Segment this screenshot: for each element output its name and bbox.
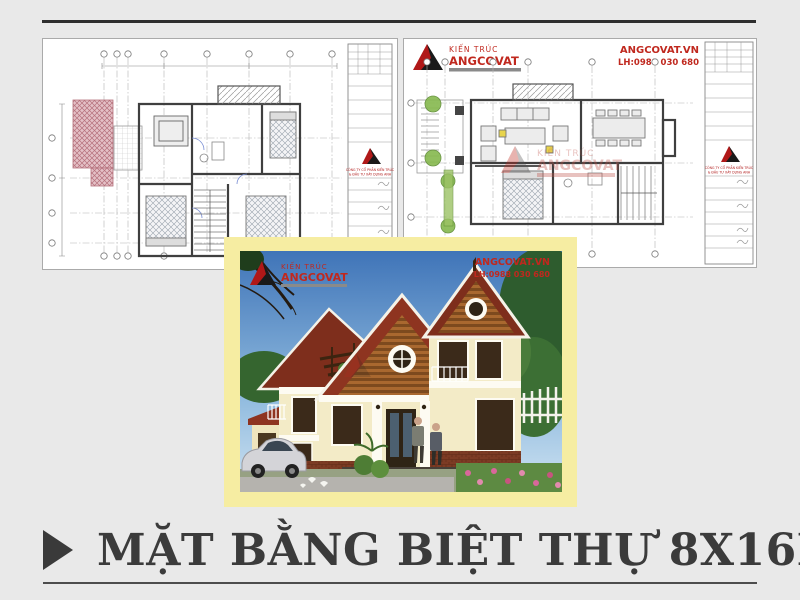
- title-block: CÔNG TY CỔ PHẦN KIẾN TRÚC & ĐẦU TƯ XÂY D…: [346, 44, 395, 264]
- floor-plan-right-drawing: KIẾN TRÚC ANGCOVAT ANGCOVAT.VN LH:0988 0…: [403, 38, 757, 268]
- family-table-icon: [154, 116, 188, 146]
- play-triangle-icon: [43, 530, 73, 570]
- floor-plan-left: CÔNG TY CỔ PHẦN KIẾN TRÚC & ĐẦU TƯ XÂY D…: [42, 38, 398, 270]
- villa-render-scene: KIẾN TRÚC ANGCOVAT ANGCOVAT.VN LH:0988 0…: [224, 237, 577, 507]
- tiled-balcony: [114, 126, 142, 170]
- logo-text-top: KIẾN TRÚC: [449, 44, 498, 54]
- company-name-line2: & ĐẦU TƯ XÂY DỰNG ANH: [708, 170, 751, 175]
- driveway: [240, 477, 454, 492]
- logo-text-top: KIẾN TRÚC: [281, 261, 328, 271]
- flower-garden: [456, 463, 562, 492]
- logo-text-name: ANGCOVAT: [449, 54, 519, 68]
- company-name-line2: & ĐẦU TƯ XÂY DỰNG ANH: [349, 172, 392, 177]
- watermark-line2: ANGCOVAT: [537, 158, 622, 174]
- balcony-railing: [432, 367, 468, 381]
- floor-plan-left-drawing: CÔNG TY CỔ PHẦN KIẾN TRÚC & ĐẦU TƯ XÂY D…: [42, 38, 398, 270]
- logo-text-name: ANGCOVAT: [281, 271, 348, 284]
- brand-contact: LH:0988 030 680: [618, 58, 699, 68]
- villa-render-photo: KIẾN TRÚC ANGCOVAT ANGCOVAT.VN LH:0988 0…: [224, 237, 577, 507]
- footer-underline: [43, 582, 757, 584]
- top-rule: [42, 20, 756, 23]
- floor-plan-right: KIẾN TRÚC ANGCOVAT ANGCOVAT.VN LH:0988 0…: [403, 38, 757, 268]
- logo-underline: [449, 68, 521, 72]
- brand-website: ANGCOVAT.VN: [620, 45, 699, 56]
- entry-canopy: [513, 84, 573, 100]
- upper-balcony: [218, 86, 280, 104]
- brand-contact: LH:0988 030 680: [474, 270, 551, 279]
- page-title: MẶT BẰNG BIỆT THỰ 8X16M: [97, 525, 800, 576]
- brand-website: ANGCOVAT.VN: [475, 257, 550, 268]
- footer-title-row: MẶT BẰNG BIỆT THỰ 8X16M: [43, 524, 757, 576]
- title-block: CÔNG TY CỔ PHẦN KIẾN TRÚC & ĐẦU TƯ XÂY D…: [705, 42, 754, 264]
